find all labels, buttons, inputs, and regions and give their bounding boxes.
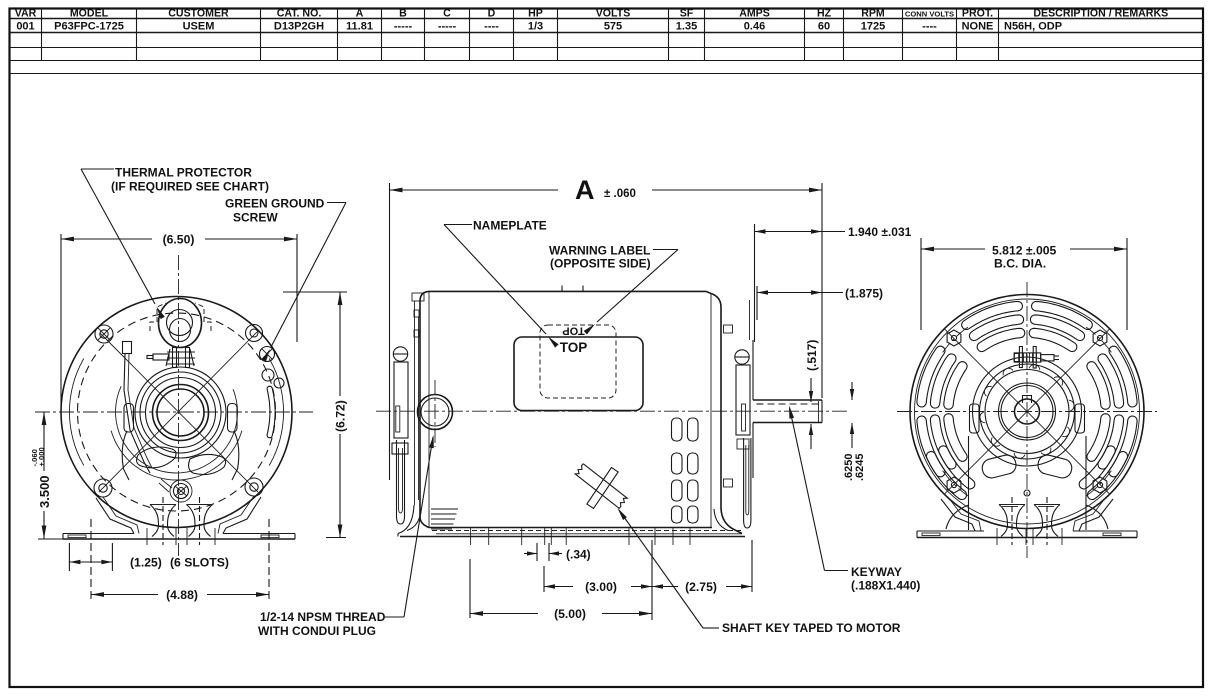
svg-text:(6 SLOTS): (6 SLOTS) [170,556,229,570]
svg-text:TOP: TOP [560,340,588,355]
svg-text:D: D [488,8,496,20]
svg-text:TOP: TOP [562,325,584,337]
svg-text:(IF REQUIRED SEE CHART): (IF REQUIRED SEE CHART) [111,180,269,194]
svg-text:P63FPC-1725: P63FPC-1725 [54,21,124,33]
svg-text:3.500: 3.500 [37,475,52,508]
svg-text:SCREW: SCREW [233,211,278,225]
svg-text:PROT.: PROT. [962,8,993,20]
svg-text:MODEL: MODEL [70,8,109,20]
svg-text:----: ---- [484,21,499,33]
svg-text:1/2-14 NPSM THREAD: 1/2-14 NPSM THREAD [260,610,386,624]
svg-text:NAMEPLATE: NAMEPLATE [473,219,547,233]
svg-text:KEYWAY: KEYWAY [851,565,902,579]
svg-text:(5.00): (5.00) [554,607,586,621]
svg-text:11.81: 11.81 [346,21,373,33]
svg-text:RPM: RPM [861,8,885,20]
svg-text:(.188X1.440): (.188X1.440) [851,579,920,593]
svg-text:1.35: 1.35 [676,21,697,33]
svg-text:DESCRIPTION / REMARKS: DESCRIPTION / REMARKS [1033,8,1168,20]
svg-text:(OPPOSITE SIDE): (OPPOSITE SIDE) [550,257,651,271]
svg-text:B.C. DIA.: B.C. DIA. [994,257,1046,271]
svg-text:(6.50): (6.50) [163,233,195,247]
svg-text:.6245: .6245 [854,453,866,481]
svg-text:HZ: HZ [817,8,832,20]
svg-text:(2.75): (2.75) [685,580,717,594]
svg-text:GREEN GROUND: GREEN GROUND [225,197,325,211]
svg-text:1725: 1725 [861,21,885,33]
svg-text:HP: HP [528,8,543,20]
svg-text:----: ---- [922,21,937,33]
svg-text:AMPS: AMPS [739,8,770,20]
svg-text:SF: SF [680,8,694,20]
svg-text:N56H, ODP: N56H, ODP [1004,21,1062,33]
svg-text:60: 60 [818,21,830,33]
svg-text:(1.25): (1.25) [130,556,162,570]
svg-text:C: C [443,8,451,20]
svg-text:(4.88): (4.88) [166,588,198,602]
svg-text:-----: ----- [394,21,413,33]
svg-text:WITH CONDUI PLUG: WITH CONDUI PLUG [258,624,376,638]
svg-text:± .060: ± .060 [604,188,636,200]
svg-text:VAR: VAR [15,8,37,20]
svg-text:-.060: -.060 [30,449,39,466]
svg-text:(6.72): (6.72) [334,400,348,432]
svg-text:001: 001 [16,21,34,33]
svg-text:NONE: NONE [962,21,994,33]
svg-text:VOLTS: VOLTS [596,8,631,20]
svg-text:A: A [575,175,595,205]
svg-text:CUSTOMER: CUSTOMER [168,8,229,20]
svg-text:CONN VOLTS: CONN VOLTS [905,10,954,19]
svg-text:(1.875): (1.875) [845,287,883,301]
svg-text:1.940 ±.031: 1.940 ±.031 [848,225,912,239]
svg-text:1/3: 1/3 [528,21,543,33]
svg-text:B: B [399,8,407,20]
svg-text:WARNING LABEL: WARNING LABEL [549,244,650,258]
svg-text:(3.00): (3.00) [585,580,617,594]
svg-text:CAT. NO.: CAT. NO. [277,8,322,20]
svg-text:-----: ----- [438,21,457,33]
svg-text:USEM: USEM [183,21,215,33]
svg-text:0.46: 0.46 [744,21,765,33]
svg-text:(.517): (.517) [805,340,819,371]
svg-text:THERMAL PROTECTOR: THERMAL PROTECTOR [115,166,252,180]
svg-text:5.812 ±.005: 5.812 ±.005 [992,244,1057,258]
svg-text:575: 575 [604,21,622,33]
svg-text:SHAFT KEY TAPED TO MOTOR: SHAFT KEY TAPED TO MOTOR [722,621,901,635]
svg-text:(.34): (.34) [566,548,591,562]
svg-text:D13P2GH: D13P2GH [274,21,324,33]
svg-text:A: A [356,8,364,20]
